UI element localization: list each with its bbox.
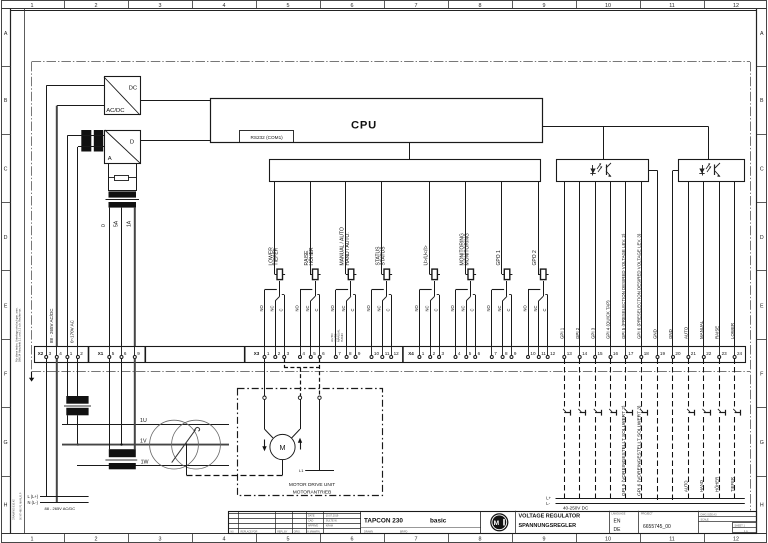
svg-text:NC: NC (377, 306, 382, 312)
svg-text:C: C (350, 309, 355, 312)
svg-text:C: C (470, 309, 475, 312)
svg-text:HAND: HAND (340, 332, 344, 342)
svg-text:11: 11 (669, 537, 675, 543)
svg-text:10: 10 (605, 537, 611, 543)
svg-text:APPRVD: APPRVD (308, 524, 318, 527)
svg-text:DATE: DATE (308, 515, 315, 518)
svg-text:HÖHER: HÖHER (715, 477, 720, 492)
svg-text:X3: X3 (254, 351, 260, 356)
svg-text:B: B (4, 98, 8, 104)
svg-text:H: H (4, 502, 8, 508)
svg-text:12: 12 (733, 537, 739, 543)
svg-text:00 NT 460 P1 MANUS.P: 00 NT 460 P1 MANUS.P (20, 492, 23, 520)
svg-text:4: 4 (223, 3, 226, 9)
svg-text:3: 3 (442, 351, 445, 356)
svg-text:D: D (4, 235, 8, 241)
svg-text:4: 4 (458, 351, 461, 356)
svg-text:LOWER: LOWER (730, 323, 735, 339)
svg-text:KRAM: KRAM (326, 524, 333, 527)
svg-text:A: A (760, 31, 764, 37)
svg-text:GPI 6 (PRESELECTION DESIRED VO: GPI 6 (PRESELECTION DESIRED VOLTAGE LEV.… (637, 233, 642, 339)
svg-text:EN: EN (614, 519, 621, 525)
svg-text:DE: DE (614, 527, 622, 533)
svg-text:3: 3 (159, 537, 162, 543)
svg-text:G: G (4, 440, 8, 446)
svg-text:BR/PD: BR/PD (400, 530, 408, 533)
svg-text:7: 7 (415, 3, 418, 9)
svg-text:AUTO: AUTO (684, 326, 689, 339)
svg-text:B: B (760, 98, 764, 104)
svg-text:ORIG.: ORIG. (294, 530, 301, 533)
svg-text:X4: X4 (408, 351, 414, 356)
svg-text:1: 1 (422, 351, 425, 356)
svg-text:NC: NC (497, 306, 502, 312)
svg-text:M: M (280, 443, 286, 452)
svg-text:6: 6 (478, 351, 481, 356)
svg-text:NO: NO (522, 305, 527, 311)
svg-text:1A: 1A (127, 220, 133, 227)
svg-text:H: H (760, 502, 764, 508)
svg-text:15: 15 (598, 351, 604, 356)
svg-text:GPI 3: GPI 3 (590, 327, 595, 339)
svg-text:L-: L- (546, 501, 550, 506)
svg-text:G: G (760, 440, 764, 446)
svg-text:Für diese techn. Unterlage wir: Für diese techn. Unterlage wird auf gen.… (14, 307, 18, 362)
svg-text:3: 3 (49, 351, 52, 356)
svg-text:CPU: CPU (351, 120, 377, 132)
svg-text:REPL.BY: REPL.BY (277, 530, 288, 533)
svg-text:MOTORANTRIEB: MOTORANTRIEB (293, 490, 332, 496)
svg-text:5: 5 (469, 351, 472, 356)
svg-text:5: 5 (313, 351, 316, 356)
svg-text:NO: NO (366, 305, 371, 311)
svg-text:A: A (108, 156, 112, 162)
svg-text:5: 5 (287, 537, 290, 543)
svg-text:C: C (314, 309, 319, 312)
svg-text:2: 2 (95, 3, 98, 9)
svg-text:6: 6 (351, 3, 354, 9)
svg-text:20: 20 (675, 351, 681, 356)
svg-text:0~170V AC: 0~170V AC (70, 319, 75, 343)
svg-text:GPO 2: GPO 2 (532, 250, 538, 266)
svg-text:SCALE: SCALE (701, 518, 710, 521)
svg-text:6: 6 (351, 537, 354, 543)
svg-text:5: 5 (112, 351, 115, 356)
svg-text:10: 10 (374, 351, 380, 356)
svg-text:NO: NO (450, 305, 455, 311)
svg-text:C: C (760, 166, 764, 172)
svg-text:RS232 (COM1): RS232 (COM1) (250, 135, 283, 140)
svg-text:E: E (760, 303, 764, 309)
svg-text:SULTE W.: SULTE W. (326, 520, 338, 523)
svg-text:10: 10 (530, 351, 536, 356)
svg-text:18: 18 (644, 351, 650, 356)
svg-text:2: 2 (278, 351, 281, 356)
svg-text:2: 2 (80, 351, 83, 356)
svg-text:NC: NC (425, 306, 430, 312)
svg-text:1 p.: 1 p. (744, 530, 748, 533)
svg-text:6: 6 (124, 351, 127, 356)
svg-text:10.07.2019: 10.07.2019 (326, 515, 339, 518)
svg-text:2: 2 (433, 351, 436, 356)
svg-text:88 - 265V AC/DC: 88 - 265V AC/DC (49, 308, 54, 343)
svg-text:DC: DC (129, 86, 138, 92)
svg-text:GPI 1: GPI 1 (560, 327, 565, 339)
svg-text:RAISE: RAISE (714, 326, 719, 339)
svg-text:LANGUAGE: LANGUAGE (612, 513, 626, 516)
svg-text:22: 22 (706, 351, 712, 356)
svg-text:NO: NO (259, 305, 264, 311)
svg-text:L+: L+ (546, 496, 551, 501)
svg-text:8: 8 (505, 351, 508, 356)
svg-text:12: 12 (394, 351, 400, 356)
svg-text:6655745_00: 6655745_00 (643, 524, 671, 530)
svg-text:11: 11 (541, 351, 546, 356)
svg-text:7: 7 (415, 537, 418, 543)
svg-text:19: 19 (660, 351, 666, 356)
svg-text:7: 7 (338, 351, 341, 356)
svg-text:MANUAL: MANUAL (699, 320, 704, 339)
svg-text:40-250V DC: 40-250V DC (563, 506, 589, 511)
svg-text:NC: NC (305, 306, 310, 312)
svg-text:24: 24 (737, 351, 743, 356)
svg-text:8: 8 (349, 351, 352, 356)
svg-text:HAND: HAND (699, 480, 704, 492)
svg-text:C: C (279, 309, 284, 312)
svg-text:14: 14 (582, 351, 588, 356)
svg-text:CAD: CAD (308, 520, 313, 523)
svg-text:AUTO: AUTO (684, 480, 689, 492)
svg-text:HÖHER: HÖHER (308, 247, 315, 265)
svg-text:6: 6 (322, 351, 325, 356)
svg-text:1W: 1W (141, 460, 149, 466)
svg-text:C: C (434, 309, 439, 312)
svg-text:AC/DC: AC/DC (106, 108, 125, 114)
svg-text:E: E (4, 303, 8, 309)
svg-text:88 - 265V AC/DC: 88 - 265V AC/DC (45, 506, 76, 511)
svg-text:5A: 5A (113, 220, 119, 227)
svg-text:NO: NO (486, 305, 491, 311)
svg-text:1V: 1V (140, 438, 147, 444)
svg-text:C: C (542, 309, 547, 312)
svg-text:1: 1 (31, 537, 34, 543)
svg-text:C: C (386, 309, 391, 312)
svg-text:1: 1 (31, 3, 34, 9)
svg-text:GND: GND (653, 329, 658, 339)
svg-text:4: 4 (302, 351, 305, 356)
svg-text:C: C (4, 166, 8, 172)
svg-text:23: 23 (722, 351, 728, 356)
svg-text:D: D (130, 140, 134, 146)
svg-text:X1: X1 (98, 351, 104, 356)
svg-text:DWG.SIZE A3: DWG.SIZE A3 (701, 513, 718, 516)
svg-text:4: 4 (223, 537, 226, 543)
svg-text:12: 12 (733, 3, 739, 9)
svg-text:DIN 34 Abschnitt 2.1 und 2.2 a: DIN 34 Abschnitt 2.1 und 2.2 a.b. Rechte… (18, 308, 22, 362)
svg-text:L (L+): L (L+) (28, 494, 39, 499)
svg-text:11: 11 (669, 3, 675, 9)
svg-text:9: 9 (514, 351, 517, 356)
svg-text:NC: NC (341, 306, 346, 312)
svg-text:NO: NO (414, 305, 419, 311)
svg-text:PROJECT: PROJECT (641, 513, 653, 516)
svg-text:16: 16 (613, 351, 619, 356)
svg-text:11: 11 (385, 351, 390, 356)
svg-text:GPI 5 (PRESELECTION DESIRED VO: GPI 5 (PRESELECTION DESIRED VOLTAGE LEV.… (621, 233, 626, 339)
svg-text:basic: basic (430, 518, 447, 525)
svg-text:9: 9 (358, 351, 361, 356)
svg-text:10: 10 (605, 3, 611, 9)
svg-text:1U: 1U (140, 418, 147, 424)
svg-text:MOTOR DRIVE UNIT: MOTOR DRIVE UNIT (289, 482, 335, 488)
svg-text:9: 9 (543, 3, 546, 9)
svg-text:NC: NC (533, 306, 538, 312)
svg-text:NO: NO (294, 305, 299, 311)
svg-text:D: D (760, 235, 764, 241)
svg-text:12: 12 (550, 351, 556, 356)
svg-text:3: 3 (287, 351, 290, 356)
svg-text:3: 3 (159, 3, 162, 9)
svg-text:1: 1 (267, 351, 270, 356)
svg-text:13: 13 (567, 351, 573, 356)
svg-text:GPI 5 (VOREINGESTELLT SOLLWERT: GPI 5 (VOREINGESTELLT SOLLWERT 2) (621, 405, 627, 496)
svg-text:X2: X2 (38, 351, 44, 356)
svg-text:NC: NC (270, 306, 275, 312)
svg-text:GPI 2: GPI 2 (575, 327, 580, 339)
svg-text:N (L-): N (L-) (28, 500, 39, 505)
svg-text:1: 1 (70, 351, 73, 356)
svg-text:VOLTAGE REGULATOR: VOLTAGE REGULATOR (519, 514, 581, 520)
svg-text:C: C (506, 309, 511, 312)
svg-text:9: 9 (137, 351, 140, 356)
svg-text:GND: GND (668, 329, 673, 339)
svg-text:8: 8 (479, 3, 482, 9)
svg-text:0: 0 (101, 224, 107, 227)
svg-text:SPANNUNGSREGLER: SPANNUNGSREGLER (519, 523, 577, 529)
svg-text:M: M (494, 520, 500, 527)
svg-text:K.MWWRN: K.MWWRN (308, 530, 320, 533)
svg-text:U>/U</I>: U>/U</I> (424, 245, 430, 265)
svg-text:5: 5 (287, 3, 290, 9)
svg-text:NO: NO (330, 305, 335, 311)
svg-text:2: 2 (95, 537, 98, 543)
svg-text:NC: NC (461, 306, 466, 312)
svg-text:TIEFER: TIEFER (730, 477, 735, 492)
svg-text:L1: L1 (299, 468, 304, 473)
svg-text:21: 21 (691, 351, 697, 356)
svg-text:4: 4 (59, 351, 62, 356)
svg-text:17: 17 (628, 351, 634, 356)
svg-text:GPI 4 (QUICK TAP): GPI 4 (QUICK TAP) (606, 300, 611, 339)
svg-text:TAPCON 230: TAPCON 230 (364, 518, 403, 525)
svg-text:GPI 6 (VOREINGESTELLT SOLLWERT: GPI 6 (VOREINGESTELLT SOLLWERT 3) (637, 405, 643, 496)
svg-text:DRAWING B10.42: DRAWING B10.42 (13, 499, 16, 520)
svg-text:REPLACE FOR: REPLACE FOR (241, 530, 258, 533)
svg-text:8: 8 (479, 537, 482, 543)
svg-text:9: 9 (543, 537, 546, 543)
svg-text:SHEET 1: SHEET 1 (735, 525, 746, 528)
svg-text:DRAWN: DRAWN (364, 530, 373, 533)
svg-text:7: 7 (494, 351, 497, 356)
svg-text:A: A (4, 31, 8, 37)
